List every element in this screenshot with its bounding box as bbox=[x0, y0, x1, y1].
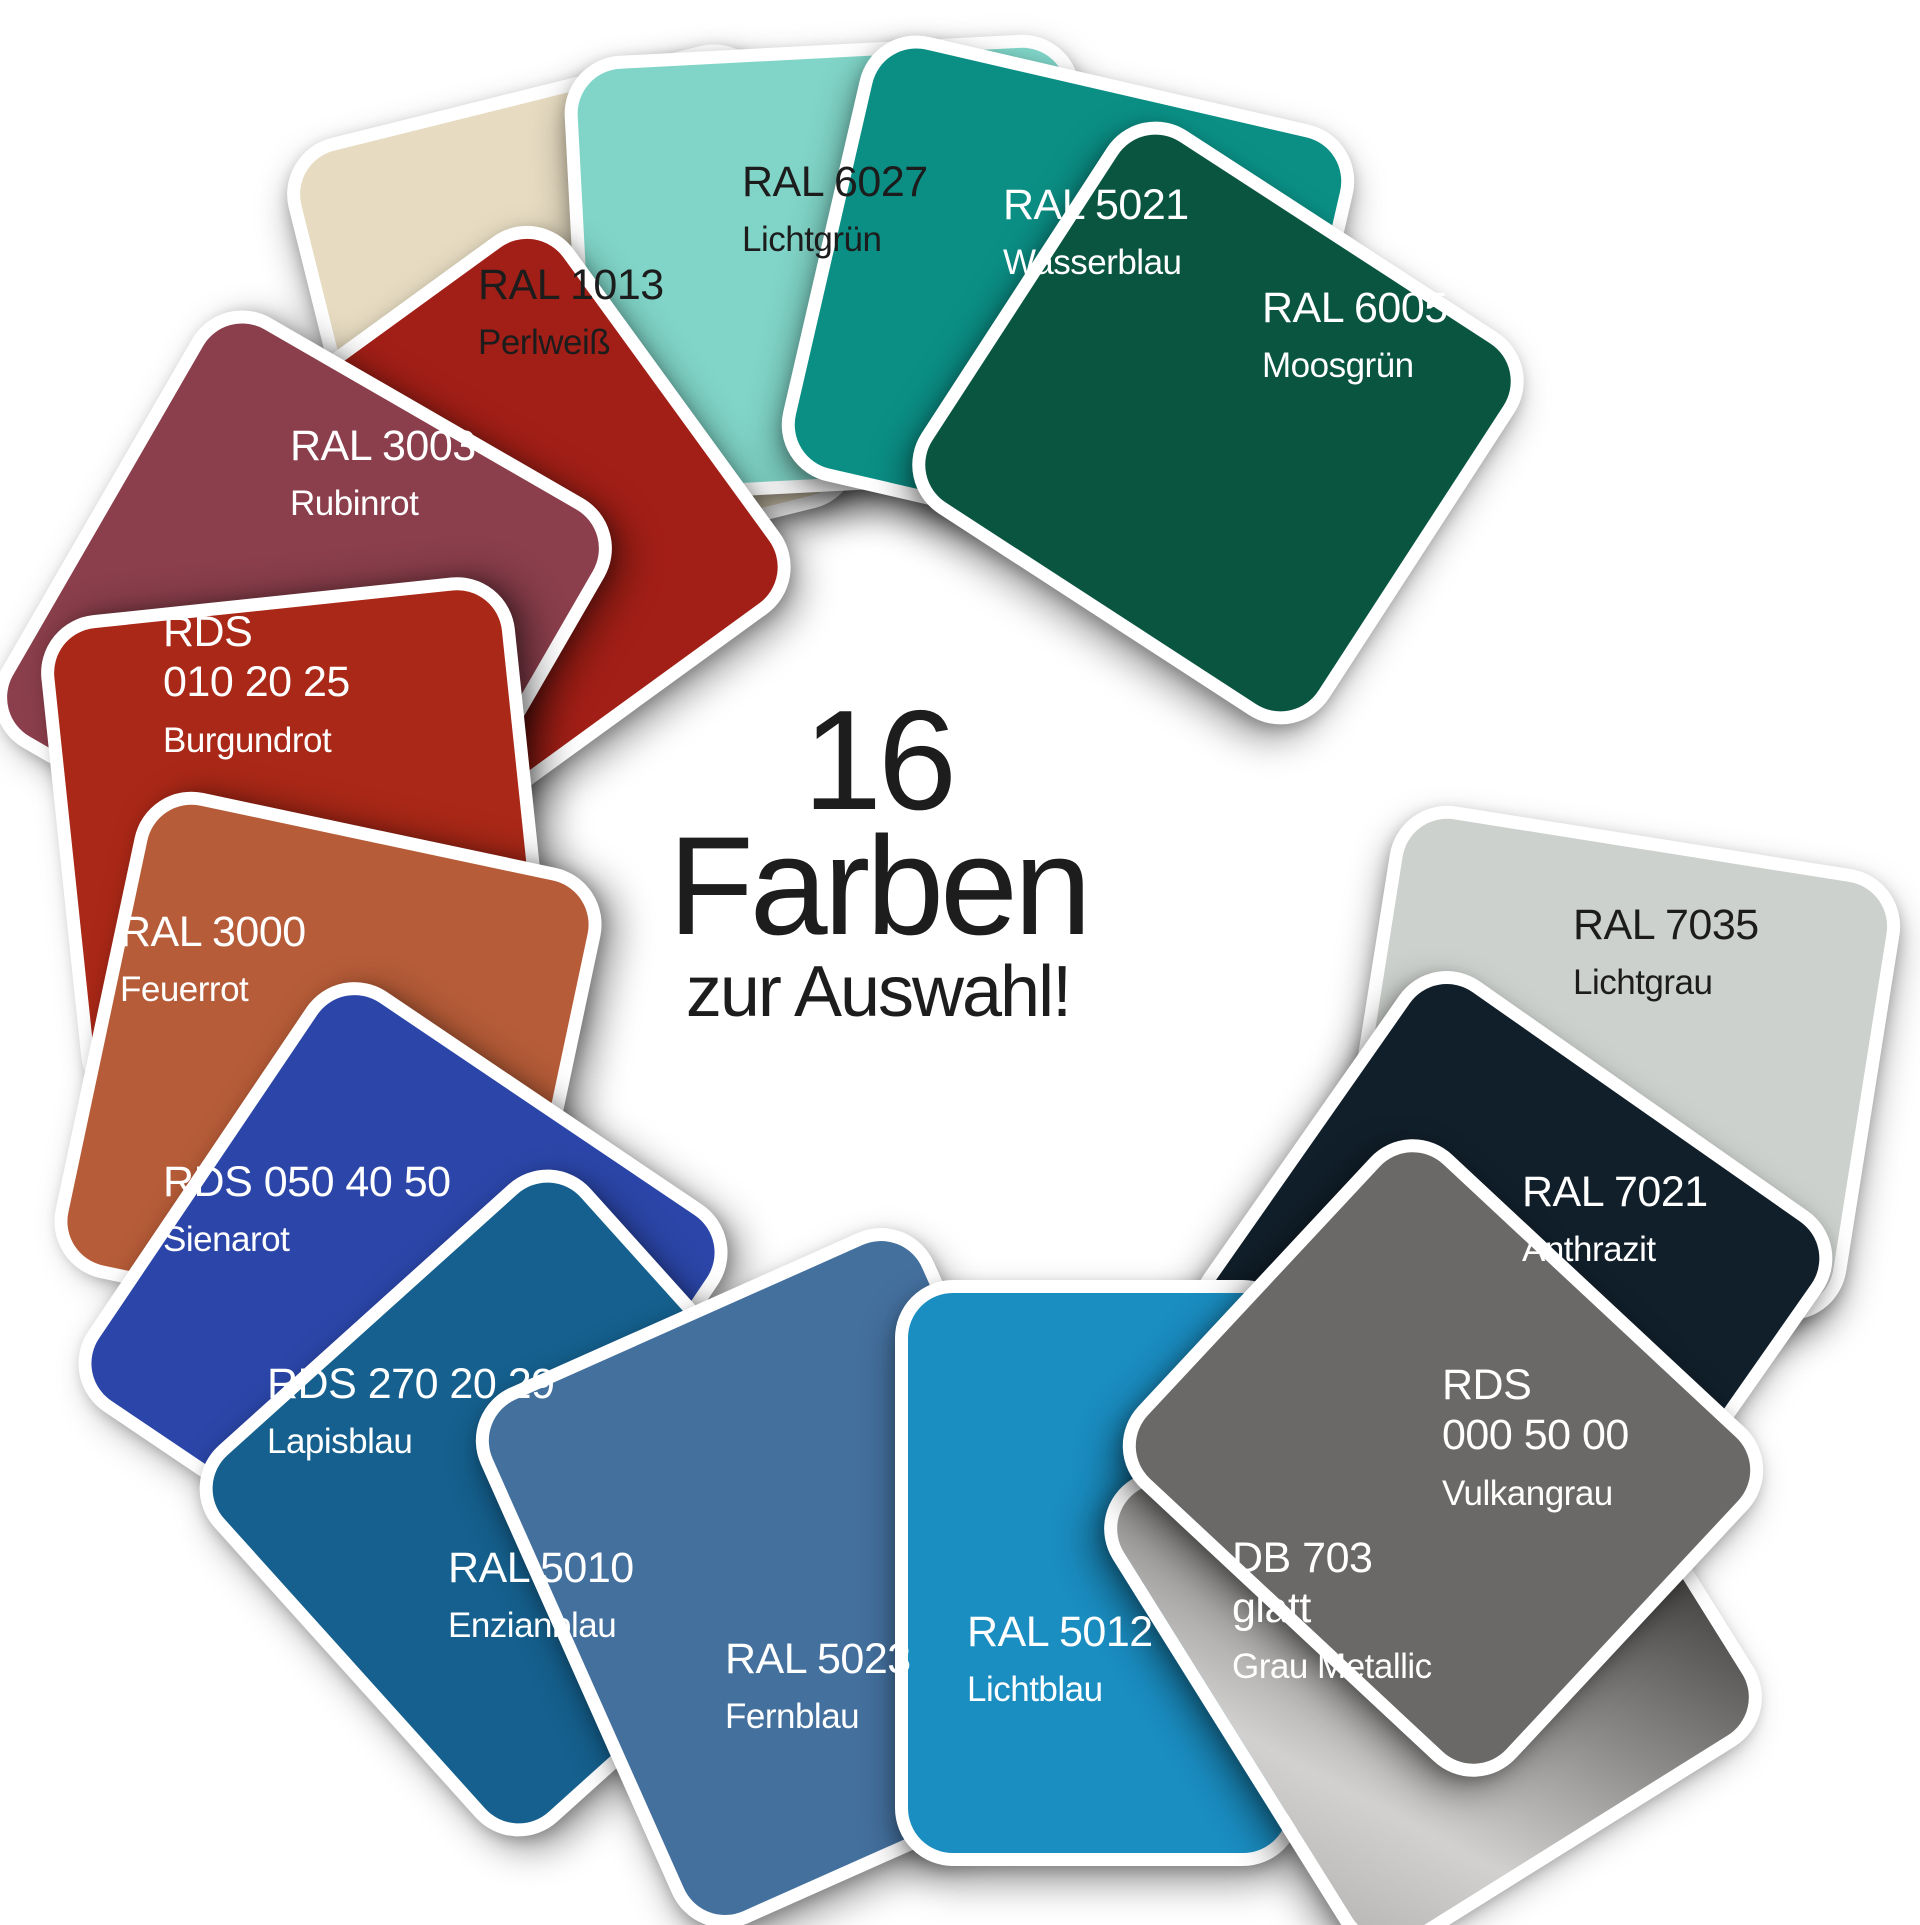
swatch-code: RAL 5012 bbox=[967, 1607, 1153, 1657]
swatch-name: Feuerrot bbox=[120, 970, 306, 1010]
swatch-code: RDS 010 20 25 bbox=[163, 607, 350, 708]
swatch-name: Grau Metallic bbox=[1232, 1647, 1432, 1687]
swatch-label-ral-1013: RAL 1013 Perlweiß bbox=[478, 260, 664, 363]
swatch-name: Burgundrot bbox=[163, 721, 350, 761]
swatch-code: RAL 3000 bbox=[120, 907, 306, 957]
swatch-label-ral-7021: RAL 7021 Anthrazit bbox=[1522, 1167, 1708, 1270]
swatch-name: Perlweiß bbox=[478, 323, 664, 363]
swatch-label-ral-3003: RAL 3003 Rubinrot bbox=[290, 421, 476, 524]
swatch-label-db-703: DB 703 glatt Grau Metallic bbox=[1232, 1533, 1432, 1687]
swatch-label-rds-000-50-00: RDS 000 50 00 Vulkangrau bbox=[1442, 1360, 1629, 1514]
swatch-name: Rubinrot bbox=[290, 484, 476, 524]
swatch-code: RAL 7035 bbox=[1573, 900, 1759, 950]
swatch-label-ral-6027: RAL 6027 Lichtgrün bbox=[742, 157, 928, 260]
swatch-name: Wasserblau bbox=[1003, 243, 1189, 283]
swatch-name: Lichtgrün bbox=[742, 220, 928, 260]
swatch-label-rds-010-20-25: RDS 010 20 25 Burgundrot bbox=[163, 607, 350, 761]
color-fan-poster: RAL 1013 Perlweiß RAL 6027 Lichtgrün RAL… bbox=[0, 0, 1920, 1925]
swatch-code: RAL 7021 bbox=[1522, 1167, 1708, 1217]
swatch-code: RAL 5023 bbox=[725, 1634, 911, 1684]
swatch-code: RAL 5010 bbox=[448, 1543, 634, 1593]
swatch-name: Fernblau bbox=[725, 1697, 911, 1737]
swatch-code: RAL 5021 bbox=[1003, 180, 1189, 230]
swatch-name: Vulkangrau bbox=[1442, 1474, 1629, 1514]
swatch-name: Lapisblau bbox=[267, 1422, 555, 1462]
swatch-name: Moosgrün bbox=[1262, 346, 1448, 386]
swatch-code: RAL 6027 bbox=[742, 157, 928, 207]
headline-word: Farben bbox=[668, 812, 1088, 960]
swatch-code: RAL 1013 bbox=[478, 260, 664, 310]
swatch-label-ral-5021: RAL 5021 Wasserblau bbox=[1003, 180, 1189, 283]
swatch-label-ral-5010: RAL 5010 Enzianblau bbox=[448, 1543, 634, 1646]
swatch-label-ral-5023: RAL 5023 Fernblau bbox=[725, 1634, 911, 1737]
swatch-name: Enzianblau bbox=[448, 1606, 634, 1646]
headline-subline: zur Auswahl! bbox=[668, 954, 1088, 1030]
swatch-label-ral-5012: RAL 5012 Lichtblau bbox=[967, 1607, 1153, 1710]
swatch-name: Anthrazit bbox=[1522, 1230, 1708, 1270]
swatch-label-ral-7035: RAL 7035 Lichtgrau bbox=[1573, 900, 1759, 1003]
center-headline: 16 Farben zur Auswahl! bbox=[668, 690, 1088, 1030]
swatch-name: Lichtgrau bbox=[1573, 963, 1759, 1003]
swatch-label-rds-270-20-29: RDS 270 20 29 Lapisblau bbox=[267, 1359, 555, 1462]
swatch-code: DB 703 glatt bbox=[1232, 1533, 1432, 1634]
swatch-code: RAL 3003 bbox=[290, 421, 476, 471]
swatch-name: Lichtblau bbox=[967, 1670, 1153, 1710]
swatch-label-ral-6005: RAL 6005 Moosgrün bbox=[1262, 283, 1448, 386]
swatch-code: RAL 6005 bbox=[1262, 283, 1448, 333]
swatch-code: RDS 050 40 50 bbox=[163, 1157, 451, 1207]
swatch-label-ral-3000: RAL 3000 Feuerrot bbox=[120, 907, 306, 1010]
swatch-label-rds-050-40-50: RDS 050 40 50 Sienarot bbox=[163, 1157, 451, 1260]
swatch-code: RDS 270 20 29 bbox=[267, 1359, 555, 1409]
swatch-name: Sienarot bbox=[163, 1220, 451, 1260]
swatch-code: RDS 000 50 00 bbox=[1442, 1360, 1629, 1461]
